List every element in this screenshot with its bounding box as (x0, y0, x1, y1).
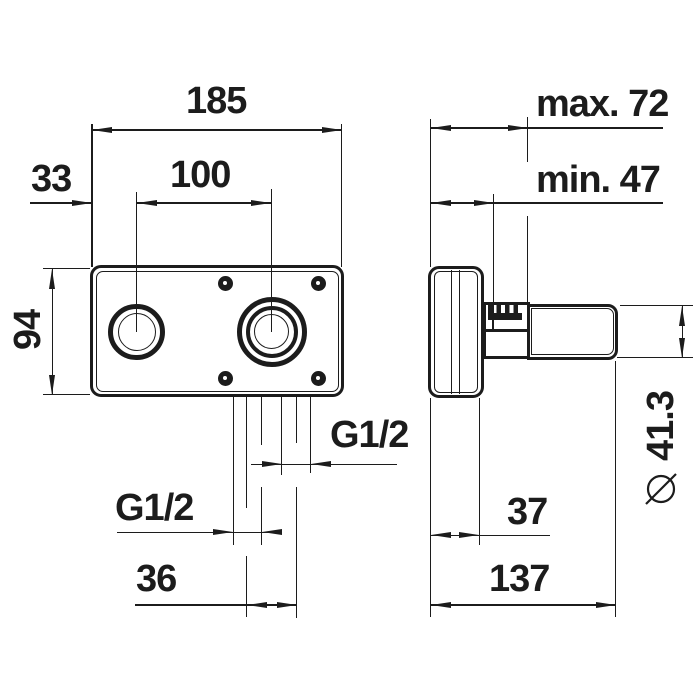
screw-hole (311, 276, 326, 291)
extension-line (341, 124, 342, 267)
outlet-centerline (246, 556, 247, 617)
dimension-line-max72 (431, 127, 663, 128)
dim-label-valve-spacing: 100 (170, 156, 230, 194)
dimension-line-g12-left (117, 532, 282, 533)
arrowhead (251, 200, 271, 206)
max-wall-line (527, 216, 528, 305)
screw-hole (218, 276, 233, 291)
dim-label-total-depth: 137 (489, 560, 549, 598)
dim-label-left-valve-offset: 33 (31, 160, 71, 198)
right-valve-centerline (271, 189, 272, 332)
extension-line (615, 361, 616, 617)
arrowhead (508, 125, 528, 131)
arrowhead (596, 602, 616, 608)
body-inner-outline (434, 271, 479, 393)
arrowhead (679, 338, 685, 358)
outlet-edge-line (261, 487, 262, 545)
arrowhead (247, 602, 267, 608)
arrowhead (92, 127, 112, 133)
arrowhead (322, 127, 342, 133)
arrowhead (431, 125, 451, 131)
extension-line (430, 398, 431, 617)
dim-label-total-height: 94 (6, 285, 50, 375)
arrowhead (49, 375, 55, 395)
screw-hole (311, 371, 326, 386)
arrowhead (474, 200, 494, 206)
dimension-line-137 (431, 604, 616, 605)
screw-hole (218, 371, 233, 386)
arrowhead (137, 200, 157, 206)
dim-label-spout-diameter: 41.3 (638, 375, 684, 525)
diameter-icon (641, 469, 681, 509)
outlet-centerline (296, 487, 297, 618)
left-valve-centerline (136, 192, 137, 332)
arrowhead (431, 200, 451, 206)
dimension-line-185 (92, 129, 342, 130)
dim-label-body-depth: 37 (507, 493, 547, 531)
dim-label-outlet-spacing: 36 (136, 560, 176, 598)
outlet-edge-line (261, 396, 262, 445)
arrowhead (72, 200, 92, 206)
arrowhead (262, 461, 282, 467)
dim-label-wall-depth-min: min. 47 (536, 161, 660, 199)
body-seam-line (459, 270, 460, 394)
extension-line (430, 119, 431, 267)
extension-line (91, 124, 92, 267)
outlet-edge-line (233, 396, 234, 545)
outlet-centerline (296, 396, 297, 443)
extension-line (479, 398, 480, 545)
arrowhead (459, 532, 479, 538)
arrowhead (311, 461, 331, 467)
arrowhead (277, 602, 297, 608)
dim-label-left-outlet-thread: G1/2 (115, 489, 193, 527)
arrowhead (213, 529, 233, 535)
dimension-line-min47 (431, 202, 663, 203)
arrowhead (679, 306, 685, 326)
outlet-centerline (246, 396, 247, 508)
spout-inner-outline (531, 308, 614, 355)
dim-label-total-width: 185 (186, 82, 246, 120)
arrowhead (431, 532, 451, 538)
dimension-line-36 (135, 604, 297, 605)
cartridge-divider (484, 329, 528, 332)
arrowhead (431, 602, 451, 608)
dim-label-wall-depth-max: max. 72 (536, 85, 668, 123)
cartridge-divider-line (492, 304, 493, 329)
technical-drawing: 185 33 100 94 G1/2 G1/2 (0, 0, 700, 700)
arrowhead (262, 529, 282, 535)
min-wall-line (493, 194, 494, 303)
dim-label-right-outlet-thread: G1/2 (330, 416, 408, 454)
body-seam-line (451, 270, 452, 394)
